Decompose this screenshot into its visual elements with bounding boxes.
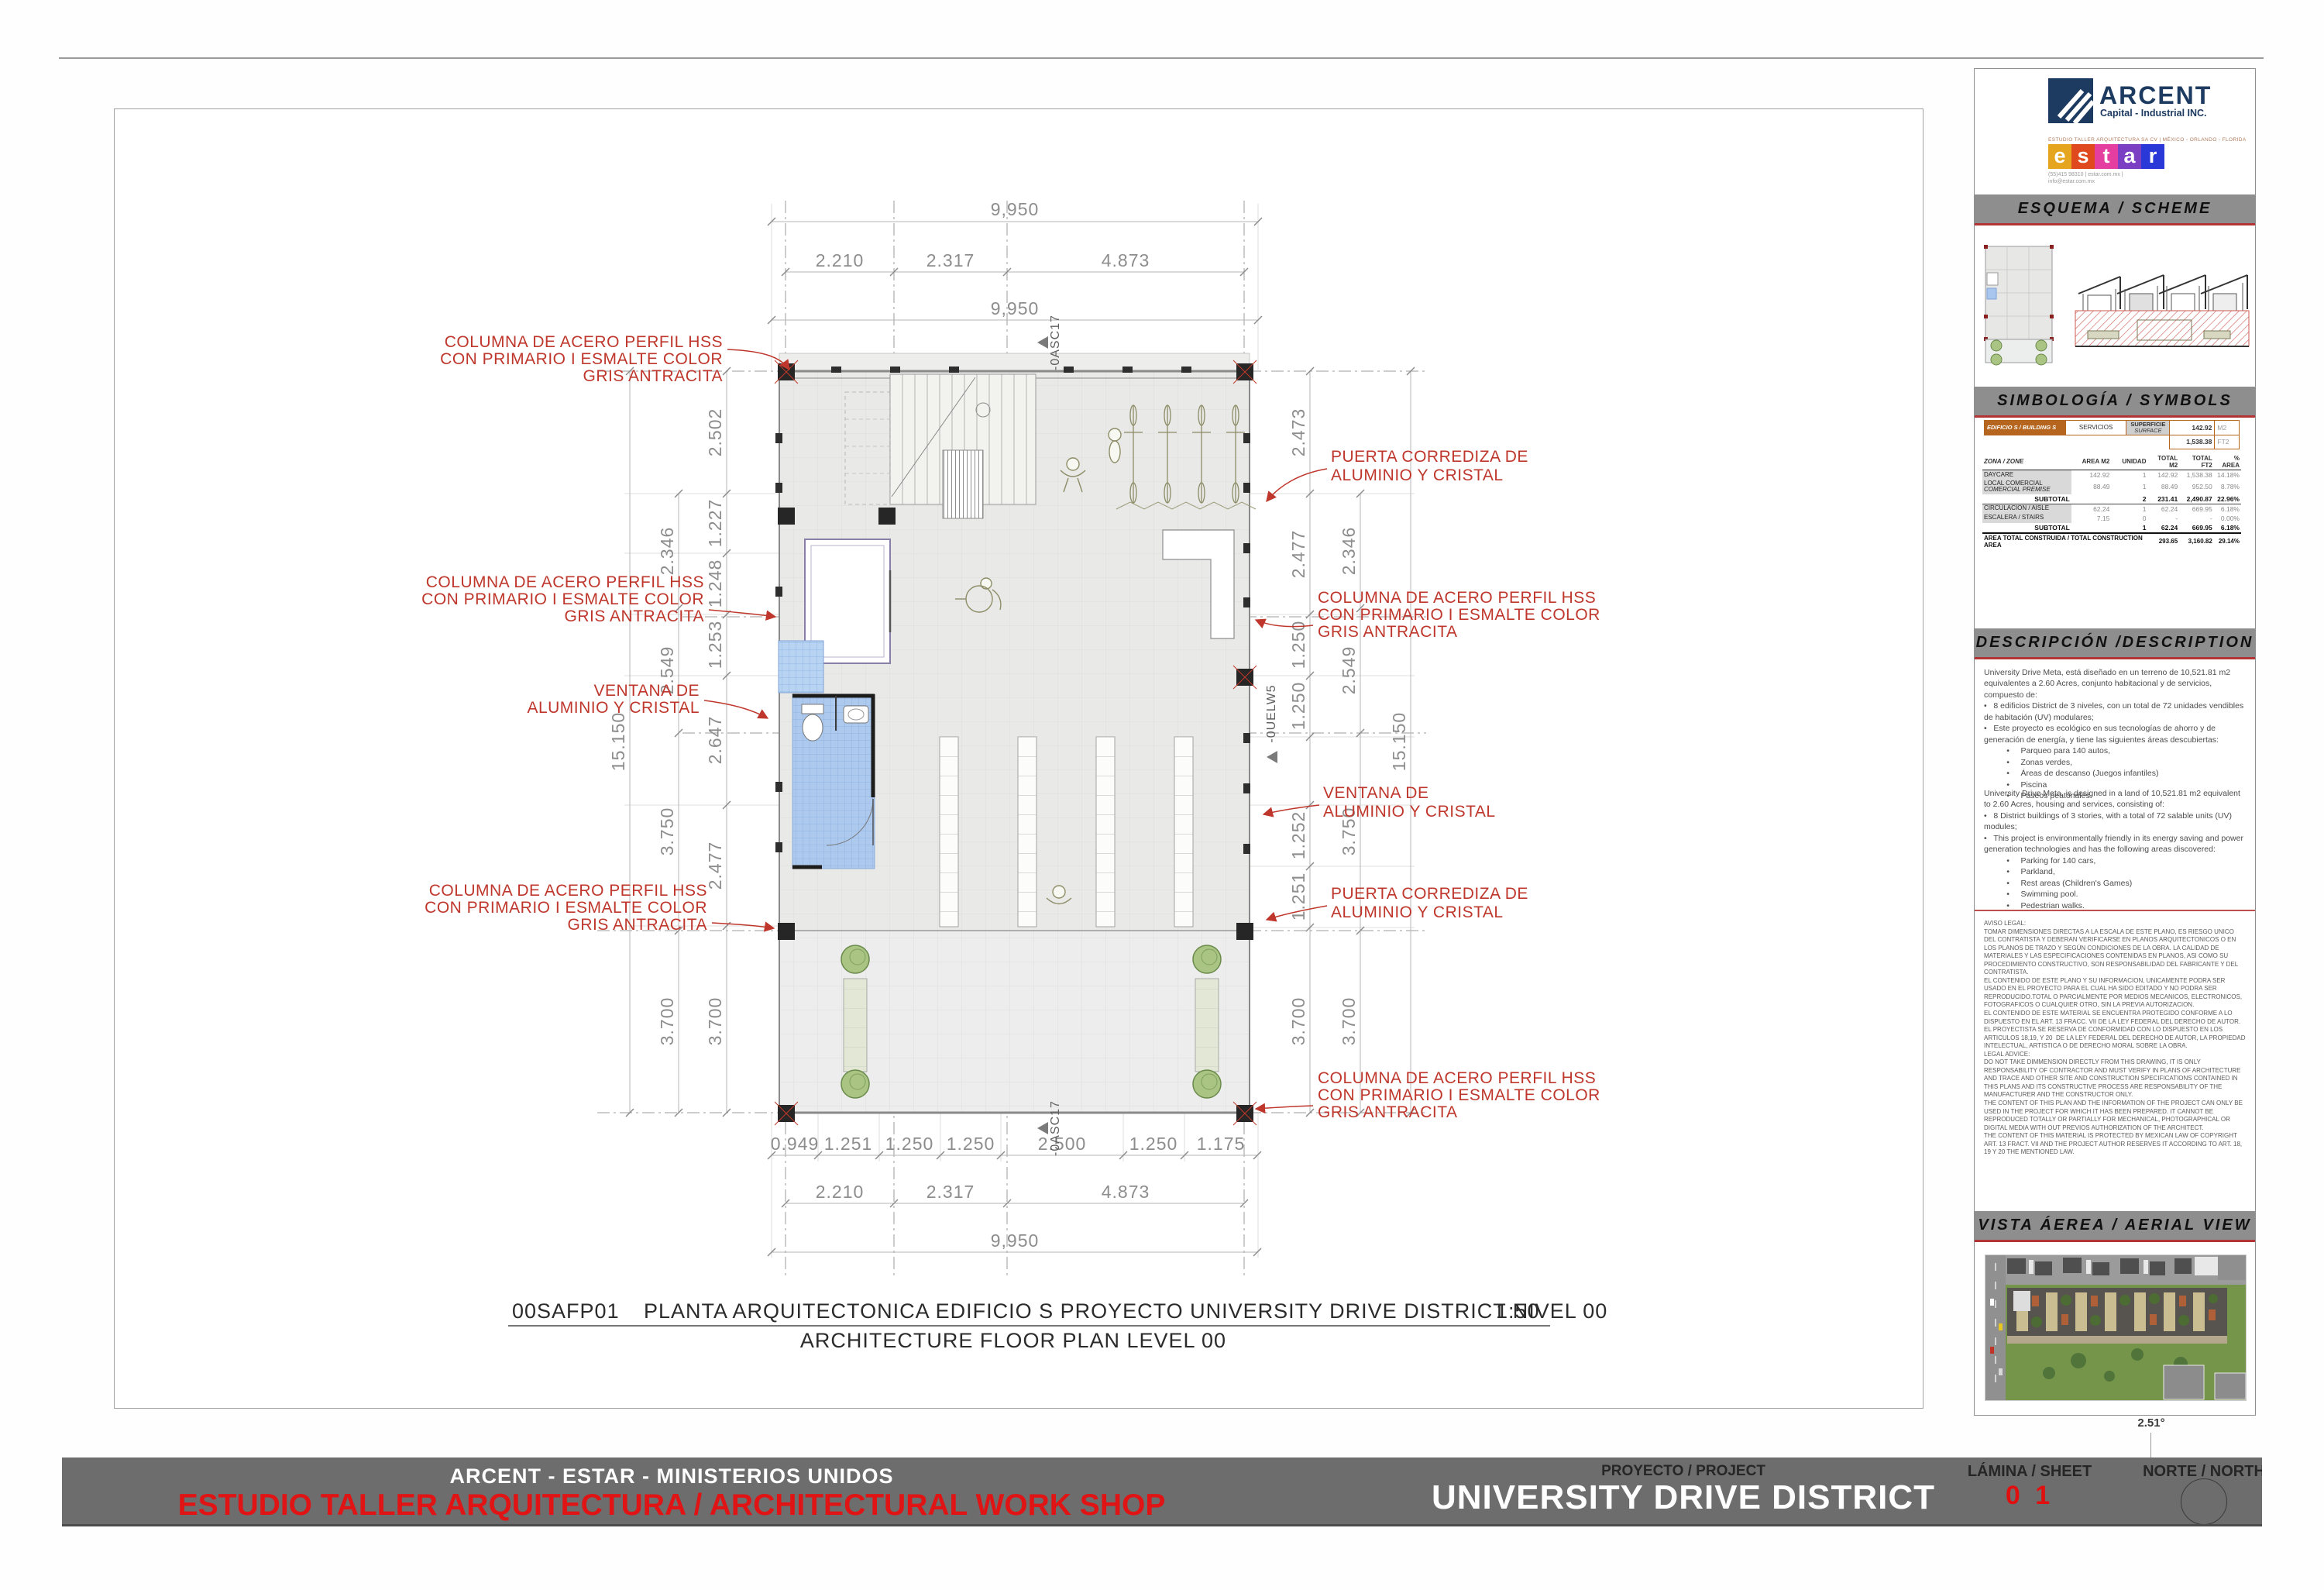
svg-text:-0ASC17: -0ASC17 <box>1049 315 1062 370</box>
title-block-panel: ARCENT Capital - Industrial INC. ESTUDIO… <box>1974 68 2256 1416</box>
table-building-label: EDIFICIO S / BUILDING S <box>1985 421 2066 435</box>
plan-subtitle: ARCHITECTURE FLOOR PLAN LEVEL 00 <box>800 1329 1226 1352</box>
svg-text:2.473: 2.473 <box>1288 408 1308 457</box>
footer-project-name: UNIVERSITY DRIVE DISTRICT <box>1377 1478 1989 1517</box>
svg-text:3.750: 3.750 <box>657 807 677 856</box>
legal-notice: AVISO LEGAL: TOMAR DIMENSIONES DIRECTAS … <box>1984 920 2247 1157</box>
footer-sheet-number: 0 1 <box>1944 1481 2115 1511</box>
plan-code: 00SAFP01 <box>512 1299 620 1323</box>
svg-text:COLUMNA DE ACERO PERFIL HSS: COLUMNA DE ACERO PERFIL HSS <box>1318 1069 1596 1087</box>
estar-letter: s <box>2071 144 2095 169</box>
svg-text:2.500: 2.500 <box>1038 1134 1087 1154</box>
footer-title-bar: ARCENT - ESTAR - MINISTERIOS UNIDOS ESTU… <box>62 1457 2262 1526</box>
svg-text:2.346: 2.346 <box>657 527 677 576</box>
svg-text:ALUMINIO Y CRISTAL: ALUMINIO Y CRISTAL <box>1331 466 1504 484</box>
table-row: DAYCARE142.921142.921,538.3814.18% <box>1982 470 2241 480</box>
tree-icon <box>1193 1070 1221 1098</box>
svg-text:1.250: 1.250 <box>885 1134 934 1154</box>
estar-letter: t <box>2095 144 2118 169</box>
svg-text:CON PRIMARIO I ESMALTE COLOR: CON PRIMARIO I ESMALTE COLOR <box>421 590 704 608</box>
svg-text:1.250: 1.250 <box>1288 682 1308 731</box>
svg-text:GRIS ANTRACITA: GRIS ANTRACITA <box>565 607 704 625</box>
window-glazing <box>779 641 823 693</box>
svg-text:1.227: 1.227 <box>705 499 725 548</box>
table-row-total: AREA TOTAL CONSTRUIDA / TOTAL CONSTRUCTI… <box>1982 533 2241 549</box>
tree-icon <box>1193 945 1221 973</box>
description-es: University Drive Meta, está diseñado en … <box>1984 667 2247 802</box>
tree-icon <box>841 945 869 973</box>
description-en: University Drive Meta, is designed in a … <box>1984 788 2247 911</box>
svg-text:3.700: 3.700 <box>1288 997 1308 1046</box>
plan-title: PLANTA ARQUITECTONICA EDIFICIO S PROYECT… <box>644 1299 1607 1323</box>
svg-text:3.700: 3.700 <box>705 997 725 1046</box>
footer-project-label: PROYECTO / PROJECT <box>1559 1463 1807 1480</box>
svg-text:15.150: 15.150 <box>1389 712 1409 771</box>
arcent-logo: ARCENT Capital - Industrial INC. <box>2048 78 2226 128</box>
footer-studio-line: ESTUDIO TALLER ARQUITECTURA / ARCHITECTU… <box>95 1488 1249 1523</box>
estar-contact: (55)415 98310 | estar.com.mx | info@esta… <box>2048 171 2203 185</box>
svg-text:1.250: 1.250 <box>1129 1134 1178 1154</box>
estar-letter: r <box>2141 144 2164 169</box>
table-row-subtotal: SUBTOTAL162.24669.956.18% <box>1982 523 2241 533</box>
svg-text:9,950: 9,950 <box>991 1230 1040 1251</box>
table-building-use: SERVICIOS <box>2065 421 2126 435</box>
svg-text:ALUMINIO Y CRISTAL: ALUMINIO Y CRISTAL <box>1323 803 1496 821</box>
estar-letter: a <box>2118 144 2141 169</box>
north-angle-label: 2.51° <box>2124 1416 2178 1430</box>
svg-text:4.873: 4.873 <box>1102 250 1150 270</box>
svg-text:2.502: 2.502 <box>705 408 725 457</box>
arcent-tagline: Capital - Industrial INC. <box>2100 108 2207 119</box>
svg-text:CON PRIMARIO I ESMALTE COLOR: CON PRIMARIO I ESMALTE COLOR <box>1318 606 1600 624</box>
estar-studio-line: ESTUDIO TALLER ARQUITECTURA SA CV | MÉXI… <box>2048 137 2203 143</box>
scheme-plan-thumbnail <box>1981 243 2057 370</box>
svg-text:1.175: 1.175 <box>1197 1134 1246 1154</box>
svg-text:2.210: 2.210 <box>816 250 865 270</box>
svg-text:1.250: 1.250 <box>1288 621 1308 669</box>
plan-title-block: 00SAFP01 PLANTA ARQUITECTONICA EDIFICIO … <box>508 1299 1607 1352</box>
svg-text:COLUMNA DE ACERO PERFIL HSS: COLUMNA DE ACERO PERFIL HSS <box>426 573 704 591</box>
svg-text:ALUMINIO Y CRISTAL: ALUMINIO Y CRISTAL <box>527 699 700 717</box>
table-row: CIRCULACION / AISLE62.24162.24669.956.18… <box>1982 504 2241 514</box>
section-header-descripcion: DESCRIPCIÓN /DESCRIPTION <box>1975 628 2255 659</box>
svg-text:0.949: 0.949 <box>771 1134 820 1154</box>
estar-logo: ESTUDIO TALLER ARQUITECTURA SA CV | MÉXI… <box>2048 137 2203 185</box>
svg-text:GRIS ANTRACITA: GRIS ANTRACITA <box>1318 623 1457 641</box>
svg-text:ALUMINIO Y CRISTAL: ALUMINIO Y CRISTAL <box>1331 903 1504 921</box>
sheet-top-rule <box>59 57 2264 59</box>
svg-text:PUERTA CORREDIZA DE: PUERTA CORREDIZA DE <box>1331 885 1528 903</box>
svg-text:1.251: 1.251 <box>824 1134 873 1154</box>
svg-text:4.873: 4.873 <box>1102 1182 1150 1202</box>
svg-text:2.317: 2.317 <box>927 1182 975 1202</box>
floor-plan-drawing: 9,950 2.210 2.317 4.873 9,950 0.949 1.25… <box>115 109 1924 1409</box>
svg-text:2.346: 2.346 <box>1339 527 1359 576</box>
table-row: LOCAL COMERCIALCOMERCIAL PREMISE88.49188… <box>1982 480 2241 494</box>
svg-text:2.477: 2.477 <box>705 841 725 890</box>
svg-text:3.700: 3.700 <box>1339 997 1359 1046</box>
svg-text:COLUMNA DE ACERO PERFIL HSS: COLUMNA DE ACERO PERFIL HSS <box>445 333 723 351</box>
table-row: ESCALERA / STAIRS7.150--0.00% <box>1982 514 2241 523</box>
section-header-vista: VISTA ÁEREA / AERIAL VIEW <box>1975 1211 2255 1242</box>
tree-icon <box>841 1070 869 1098</box>
svg-text:CON PRIMARIO I ESMALTE COLOR: CON PRIMARIO I ESMALTE COLOR <box>440 350 723 368</box>
svg-text:2.477: 2.477 <box>1288 530 1308 579</box>
svg-text:COLUMNA DE ACERO PERFIL HSS: COLUMNA DE ACERO PERFIL HSS <box>429 882 707 900</box>
surface-ft2: 1,538.38 <box>2170 435 2215 449</box>
svg-text:1.250: 1.250 <box>947 1134 995 1154</box>
bathroom <box>792 694 875 869</box>
arcent-name: ARCENT <box>2099 81 2212 110</box>
svg-text:1.253: 1.253 <box>705 621 725 669</box>
svg-text:1.252: 1.252 <box>1288 811 1308 860</box>
plan-frame: 9,950 2.210 2.317 4.873 9,950 0.949 1.25… <box>114 108 1923 1409</box>
svg-text:2.210: 2.210 <box>816 1182 865 1202</box>
scheme-section-thumbnail <box>2072 263 2252 360</box>
footer-sheet-label: LÁMINA / SHEET <box>1944 1463 2115 1481</box>
svg-text:15.150: 15.150 <box>608 712 628 771</box>
svg-text:CON PRIMARIO I ESMALTE COLOR: CON PRIMARIO I ESMALTE COLOR <box>1318 1086 1600 1104</box>
section-marker-arrow-icon <box>1037 1122 1048 1134</box>
svg-text:-0UELW5: -0UELW5 <box>1265 684 1278 742</box>
svg-text:9,950: 9,950 <box>991 199 1040 219</box>
svg-text:GRIS ANTRACITA: GRIS ANTRACITA <box>583 367 723 385</box>
svg-text:COLUMNA DE ACERO PERFIL HSS: COLUMNA DE ACERO PERFIL HSS <box>1318 589 1596 607</box>
svg-text:GRIS ANTRACITA: GRIS ANTRACITA <box>1318 1103 1457 1121</box>
north-indicator-icon <box>2181 1478 2227 1525</box>
arcent-logo-icon <box>2048 78 2093 123</box>
svg-text:GRIS ANTRACITA: GRIS ANTRACITA <box>568 916 707 934</box>
section-header-simbologia: SIMBOLOGÍA / SYMBOLS <box>1975 387 2255 418</box>
estar-logo-blocks: e s t a r <box>2048 144 2203 169</box>
estar-letter: e <box>2048 144 2071 169</box>
plan-scale: 1:50 <box>1496 1299 1540 1323</box>
footer-company-line: ARCENT - ESTAR - MINISTERIOS UNIDOS <box>339 1464 1005 1488</box>
drawing-sheet: 9,950 2.210 2.317 4.873 9,950 0.949 1.25… <box>0 0 2324 1590</box>
svg-text:2.647: 2.647 <box>705 716 725 765</box>
louver-vent <box>943 450 983 518</box>
svg-text:3.700: 3.700 <box>657 997 677 1046</box>
aerial-view-image <box>1985 1254 2247 1401</box>
section-marker-arrow-icon <box>1037 336 1048 349</box>
svg-text:VENTANA DE: VENTANA DE <box>1323 784 1428 802</box>
section-divider <box>1975 910 2255 911</box>
section-header-esquema: ESQUEMA / SCHEME <box>1975 194 2255 225</box>
svg-text:VENTANA DE: VENTANA DE <box>594 682 700 700</box>
svg-text:2.317: 2.317 <box>927 250 975 270</box>
svg-text:1.248: 1.248 <box>705 559 725 608</box>
svg-text:CON PRIMARIO I ESMALTE COLOR: CON PRIMARIO I ESMALTE COLOR <box>425 899 707 917</box>
table-row-subtotal: SUBTOTAL2231.412,490.8722.96% <box>1982 494 2241 504</box>
footer-north-label: NORTE / NORTH <box>2119 1463 2262 1481</box>
svg-text:2.549: 2.549 <box>1339 646 1359 695</box>
svg-text:9,950: 9,950 <box>991 298 1040 318</box>
svg-text:-0ASC17: -0ASC17 <box>1049 1100 1062 1156</box>
section-marker-arrow-icon <box>1267 751 1277 763</box>
surface-m2: 142.92 <box>2170 421 2215 435</box>
symbols-table: EDIFICIO S / BUILDING S SERVICIOS SUPERF… <box>1982 420 2249 549</box>
svg-text:PUERTA CORREDIZA DE: PUERTA CORREDIZA DE <box>1331 448 1528 466</box>
